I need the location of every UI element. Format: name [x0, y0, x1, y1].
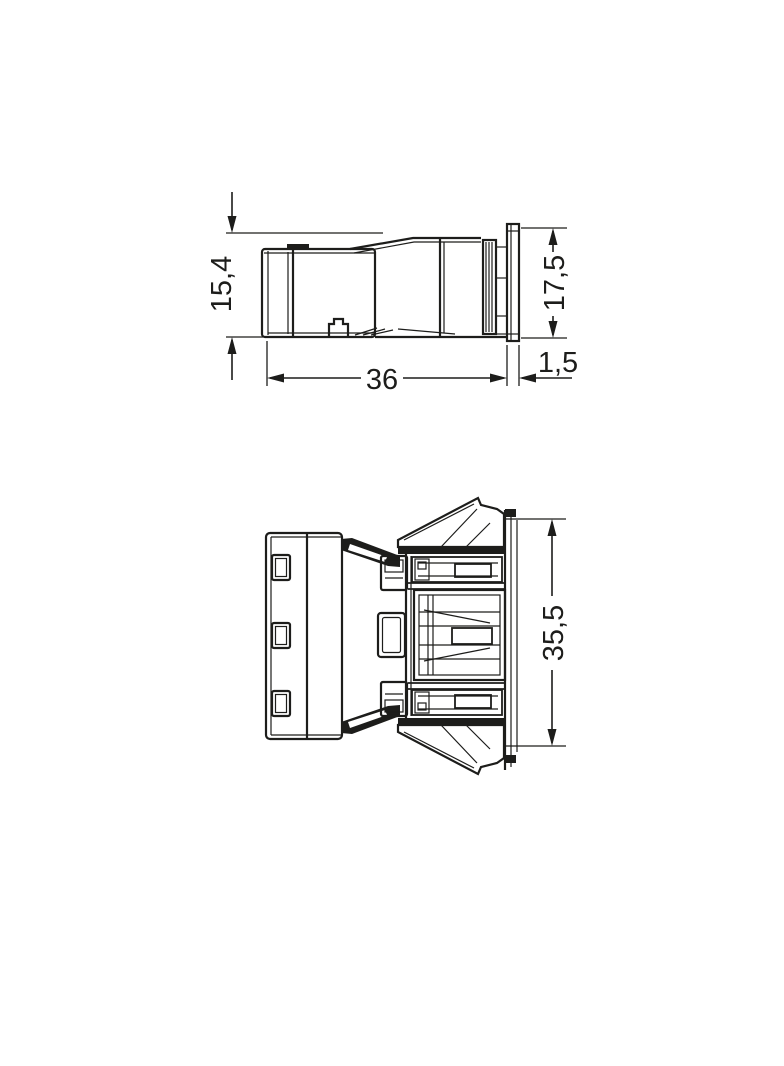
- dim-label-overall-height: 17,5: [539, 255, 571, 311]
- top-guide-wing: [398, 498, 504, 547]
- dimension-overall-height: 17,5: [521, 228, 571, 338]
- top-view: 35,5: [266, 498, 570, 774]
- bottom-guide-wing: [398, 725, 504, 774]
- side-view: 15,4 17,5 36: [206, 192, 578, 396]
- arrowhead-up-icon: [228, 337, 237, 354]
- conductor-port: [272, 691, 290, 716]
- cable-block-outline: [266, 533, 342, 739]
- contact-row: [412, 690, 502, 715]
- conductor-port: [272, 555, 290, 580]
- dim-label-overall-width: 35,5: [538, 605, 570, 661]
- dim-label-housing-length: 36: [366, 364, 398, 396]
- front-housing-outline: [262, 249, 375, 337]
- contact-row: [412, 557, 502, 582]
- conductor-port: [272, 623, 290, 648]
- flange-plate: [507, 224, 519, 341]
- contact-row: [414, 590, 505, 680]
- dim-label-front-height: 15,4: [206, 256, 238, 312]
- dimension-front-height: 15,4: [206, 192, 383, 380]
- dim-label-flange-thickness: 1,5: [538, 347, 578, 379]
- arrowhead-up-icon: [549, 228, 558, 245]
- connector-dimension-drawing: 15,4 17,5 36: [0, 0, 784, 1066]
- arrowhead-down-icon: [548, 729, 557, 746]
- dimension-overall-width: 35,5: [506, 519, 570, 746]
- bottom-notch: [329, 319, 348, 337]
- arrowhead-right-icon: [490, 374, 507, 383]
- top-view-outline: [266, 498, 517, 774]
- arrowhead-left-icon: [519, 374, 536, 383]
- arrowhead-up-icon: [548, 519, 557, 536]
- arrowhead-down-icon: [549, 321, 558, 338]
- side-view-outline: [262, 224, 519, 341]
- dimension-housing-length: 36: [267, 341, 507, 396]
- drawing-canvas: 15,4 17,5 36: [0, 0, 784, 1066]
- dimension-flange-thickness: 1,5: [519, 345, 578, 386]
- hatch-lines: [355, 328, 393, 335]
- arrowhead-left-icon: [267, 374, 284, 383]
- arrowhead-down-icon: [228, 216, 237, 233]
- top-rib-tab: [287, 244, 309, 249]
